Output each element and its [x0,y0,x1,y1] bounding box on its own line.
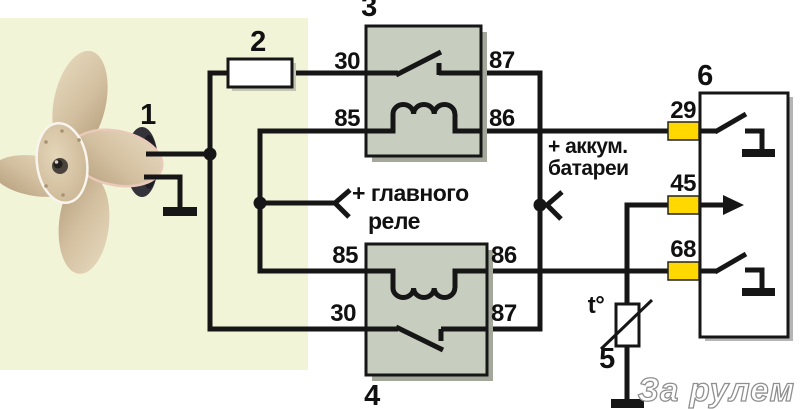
ground-icon-fan [163,207,197,216]
connector-6-symbol [700,93,793,341]
relay4-pin-30-label: 30 [322,301,356,326]
junction-dot-fan [204,148,217,161]
pin-chip-68 [668,262,699,280]
fan-illustration [0,46,168,277]
component-6-label: 6 [691,61,719,91]
connector-pin-29-label: 29 [660,98,696,123]
sensor-temperature-symbol: t° [579,293,613,318]
watermark: За рулем [555,371,795,409]
pin-chip-45 [668,196,699,214]
battery-annotation-line1: + аккум. [548,136,628,158]
relay4-pin-85-label: 85 [324,243,358,268]
fuse-symbol [228,59,296,91]
connector-pin-45-label: 45 [660,171,696,196]
battery-connector-icon [547,192,562,219]
ground-icon-29 [742,149,775,157]
main-relay-annotation-line1: + главного [352,181,469,205]
relay3-pin-30-label: 30 [326,49,360,74]
relay3-pin-86-label: 86 [489,106,529,131]
battery-annotation-line2: батареи [548,158,629,180]
component-2-label: 2 [244,27,272,57]
pin-chip-29 [668,122,699,140]
relay4-pin-86-label: 86 [491,243,531,268]
relay3-pin-87-label: 87 [489,48,529,73]
connector-pin-68-label: 68 [660,237,696,262]
component-3-label: 3 [355,0,383,22]
ground-icon-68 [742,288,775,296]
main-relay-connector-icon [335,190,350,217]
wiring-diagram-canvas: 1 2 3 4 5 6 t° 30 85 87 86 85 30 86 87 2… [0,0,800,409]
component-1-label: 1 [134,100,162,130]
junction-dot-main-relay [254,197,267,210]
relay-4-symbol [366,244,493,381]
component-5-label: 5 [593,344,621,374]
relay4-pin-87-label: 87 [491,301,531,326]
main-relay-annotation-line2: реле [368,209,420,233]
relay-3-symbol [366,26,487,162]
component-4-label: 4 [358,381,386,409]
relay3-pin-85-label: 85 [326,106,360,131]
